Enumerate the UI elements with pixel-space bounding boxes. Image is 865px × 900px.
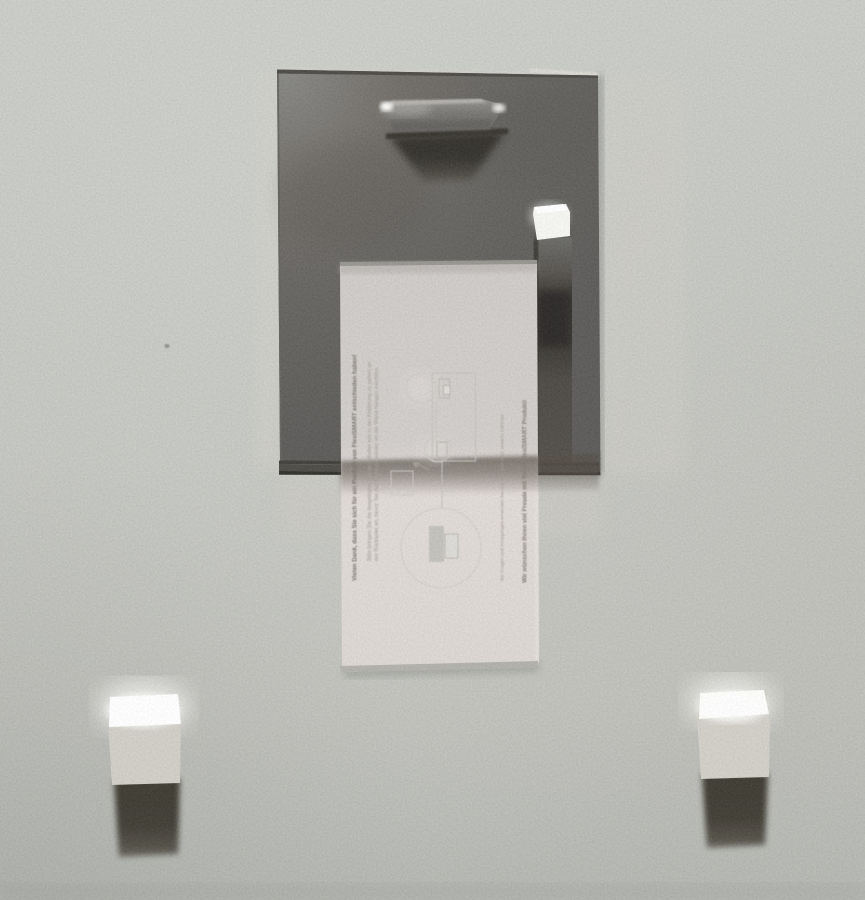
svg-text:Bitte bringen Sie die beigeleg: Bitte bringen Sie die beigelegten Abstan… bbox=[367, 362, 373, 561]
svg-text:Bei Fragen und Anregungen erre: Bei Fragen und Anregungen erreichen Sie … bbox=[500, 414, 506, 581]
svg-text:Wir wünschen Ihnen viel Freude: Wir wünschen Ihnen viel Freude mit Ihrem… bbox=[523, 400, 529, 583]
svg-text:der Rückseite an, bevor Sie de: der Rückseite an, bevor Sie den Rahmen w… bbox=[374, 366, 380, 561]
svg-text:Vielen Dank, dass Sie sich für: Vielen Dank, dass Sie sich für ein Produ… bbox=[353, 354, 359, 581]
